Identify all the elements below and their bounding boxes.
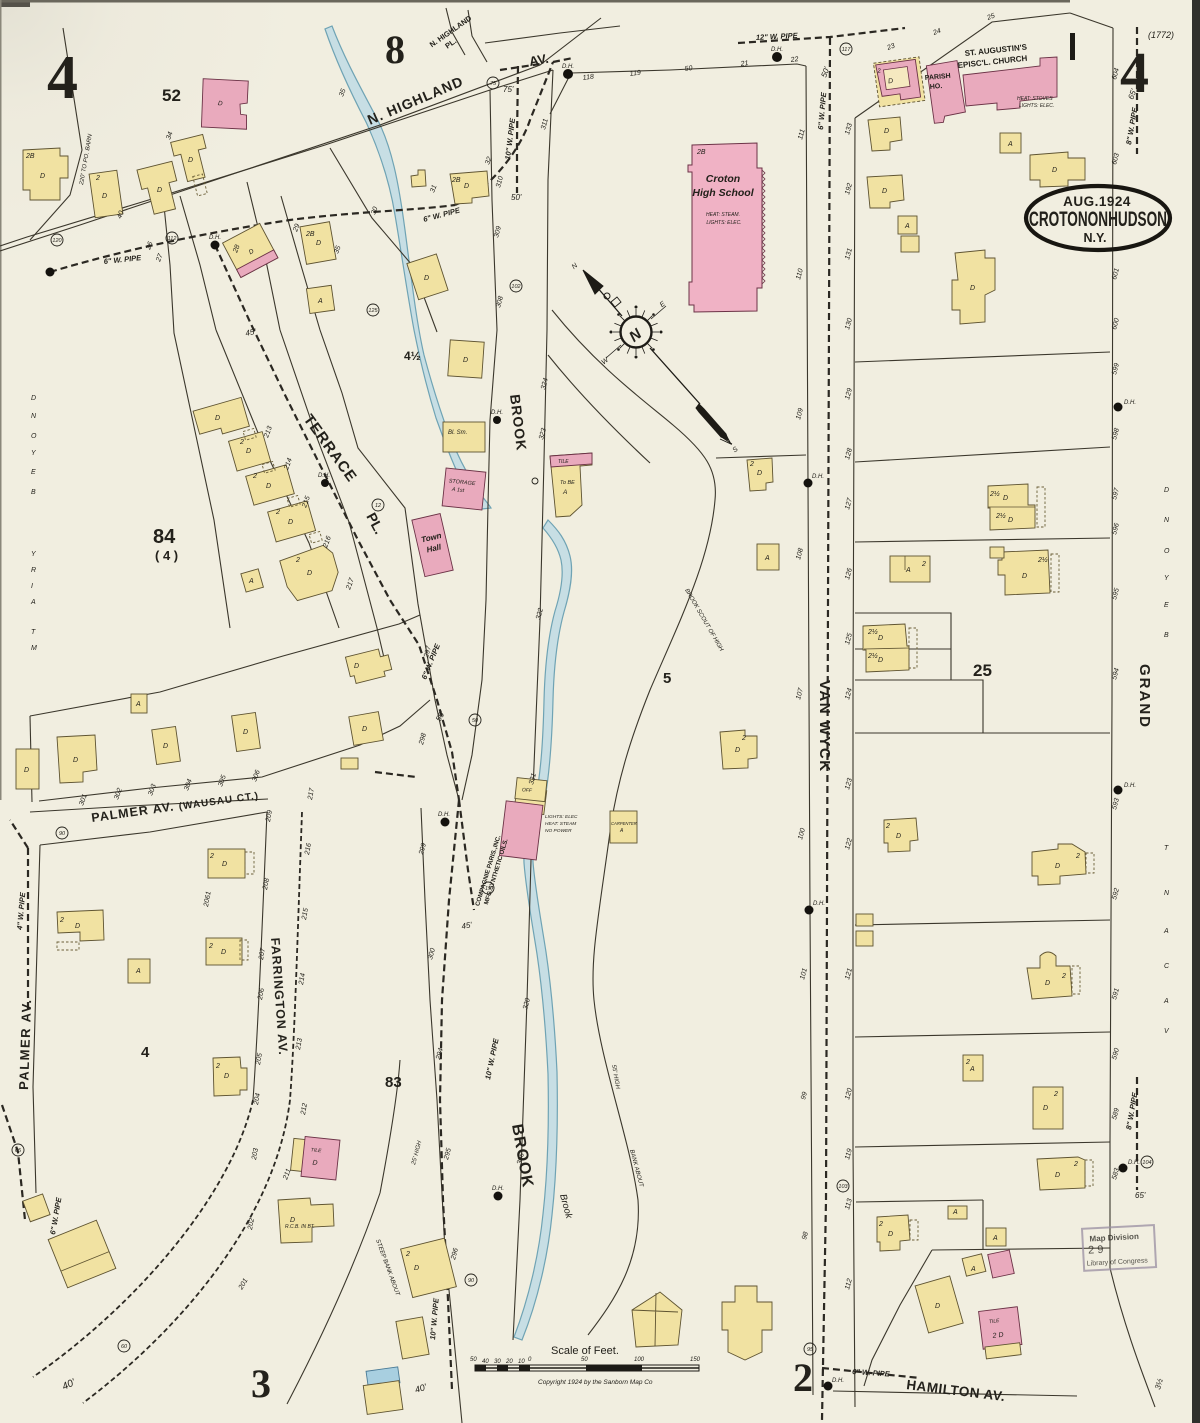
svg-text:D: D (896, 833, 901, 840)
svg-text:D: D (1055, 1172, 1060, 1179)
svg-text:M: M (31, 645, 37, 652)
svg-text:D: D (464, 183, 469, 190)
svg-text:D: D (463, 357, 468, 364)
svg-text:TILE: TILE (310, 1147, 322, 1154)
svg-text:D: D (40, 173, 45, 180)
svg-text:D: D (243, 729, 248, 736)
svg-text:90: 90 (468, 1278, 475, 1284)
svg-text:D: D (888, 1231, 893, 1238)
svg-text:D.H.: D.H. (812, 474, 824, 480)
svg-text:A: A (619, 828, 624, 834)
svg-text:LIGHTS: ELEC: LIGHTS: ELEC (545, 814, 578, 820)
svg-text:R: R (31, 567, 36, 574)
svg-text:22: 22 (789, 56, 799, 64)
svg-text:NO POWER: NO POWER (545, 828, 572, 834)
svg-text:(1772): (1772) (1148, 30, 1174, 40)
svg-text:2½: 2½ (1037, 556, 1048, 564)
svg-text:2: 2 (965, 1059, 970, 1066)
svg-text:4: 4 (141, 1044, 150, 1061)
svg-text:D.H.: D.H. (438, 812, 450, 818)
svg-text:D: D (878, 635, 883, 642)
svg-text:R.C.B. IN BT.: R.C.B. IN BT. (285, 1224, 315, 1230)
svg-text:D: D (1045, 980, 1050, 987)
svg-text:D: D (735, 747, 740, 754)
svg-text:D.H.: D.H. (209, 235, 221, 241)
svg-text:2: 2 (1075, 853, 1080, 860)
svg-text:2: 2 (209, 853, 214, 860)
svg-text:3: 3 (251, 1361, 271, 1406)
svg-text:D.H.: D.H. (562, 64, 574, 70)
svg-text:A: A (562, 489, 567, 496)
svg-text:D: D (882, 188, 887, 195)
svg-text:8: 8 (385, 27, 405, 72)
svg-text:A: A (1163, 998, 1169, 1005)
svg-text:D: D (1052, 167, 1057, 174)
svg-text:D: D (246, 448, 251, 455)
svg-text:D: D (1043, 1105, 1048, 1112)
svg-text:2½: 2½ (995, 512, 1006, 520)
svg-text:2: 2 (1061, 973, 1066, 980)
svg-text:40: 40 (482, 1359, 489, 1365)
svg-text:A: A (952, 1209, 958, 1216)
svg-text:HEAT: STEAM: HEAT: STEAM (545, 821, 576, 827)
svg-text:103: 103 (838, 1184, 848, 1190)
svg-text:OFF: OFF (522, 787, 534, 794)
svg-text:75': 75' (503, 85, 514, 94)
svg-text:150: 150 (690, 1357, 701, 1363)
svg-text:A: A (248, 578, 254, 585)
svg-text:D: D (1055, 863, 1060, 870)
svg-text:HEAT: STOVES: HEAT: STOVES (1017, 96, 1053, 102)
svg-text:D: D (75, 923, 80, 930)
svg-text:D: D (288, 519, 293, 526)
svg-text:50: 50 (470, 1357, 477, 1363)
svg-text:HEAT: STEAM.: HEAT: STEAM. (706, 212, 740, 218)
svg-text:12: 12 (375, 503, 381, 509)
svg-text:T: T (31, 629, 36, 636)
svg-text:D: D (884, 128, 889, 135)
svg-text:A: A (905, 567, 911, 574)
svg-text:2 9: 2 9 (1088, 1244, 1104, 1257)
svg-text:4½: 4½ (404, 349, 421, 363)
svg-text:2: 2 (295, 557, 300, 564)
svg-text:2B: 2B (696, 149, 706, 156)
svg-text:2: 2 (749, 461, 754, 468)
svg-text:52: 52 (162, 86, 181, 105)
svg-text:D: D (1003, 495, 1008, 502)
svg-text:D.H.: D.H. (1124, 783, 1136, 789)
svg-text:E: E (31, 469, 36, 476)
svg-text:Scale of Feet.: Scale of Feet. (551, 1345, 619, 1357)
svg-text:2: 2 (793, 1355, 813, 1400)
svg-text:2: 2 (741, 735, 746, 742)
svg-text:2B: 2B (305, 231, 315, 238)
svg-text:2: 2 (878, 1221, 883, 1228)
svg-text:D: D (157, 187, 162, 194)
svg-text:D: D (266, 483, 271, 490)
svg-text:2B: 2B (25, 153, 35, 160)
svg-text:65: 65 (15, 1148, 22, 1154)
svg-text:2 D: 2 D (991, 1332, 1004, 1340)
svg-text:GRAND: GRAND (1136, 664, 1153, 729)
svg-text:N.Y.: N.Y. (1084, 231, 1107, 245)
svg-text:D.H.: D.H. (771, 47, 783, 53)
svg-text:D: D (312, 1159, 318, 1166)
svg-text:A: A (135, 701, 141, 708)
svg-text:I: I (31, 583, 33, 590)
svg-text:A: A (30, 599, 36, 606)
svg-text:117: 117 (842, 47, 852, 53)
svg-text:D.H.: D.H. (832, 1378, 844, 1384)
svg-text:D: D (1008, 517, 1013, 524)
svg-text:D: D (935, 1303, 940, 1310)
svg-text:D.H.: D.H. (491, 410, 503, 416)
svg-text:D.H.: D.H. (813, 901, 825, 907)
svg-text:2: 2 (252, 473, 257, 480)
svg-text:2: 2 (885, 823, 890, 830)
svg-text:D: D (888, 78, 894, 86)
svg-text:A: A (764, 555, 770, 562)
svg-text:50': 50' (511, 193, 522, 202)
svg-text:A: A (969, 1066, 975, 1073)
svg-text:Croton: Croton (706, 173, 740, 185)
svg-text:102: 102 (511, 284, 520, 290)
svg-text:TILE: TILE (558, 459, 569, 465)
svg-text:50: 50 (472, 718, 479, 724)
svg-text:D: D (354, 663, 359, 670)
svg-text:PALMER AV.: PALMER AV. (16, 998, 34, 1090)
svg-text:D: D (970, 285, 975, 292)
svg-text:2: 2 (59, 917, 64, 924)
svg-text:10: 10 (518, 1359, 525, 1365)
svg-text:90: 90 (59, 831, 66, 837)
svg-text:2: 2 (215, 1063, 220, 1070)
svg-text:D: D (73, 757, 78, 764)
svg-text:( 4 ): ( 4 ) (155, 548, 178, 563)
svg-text:D: D (24, 767, 29, 774)
svg-text:D.H.: D.H. (1128, 1160, 1140, 1166)
svg-text:Copyright 1924 by the Sanborn: Copyright 1924 by the Sanborn Map Co (538, 1379, 653, 1386)
svg-text:21: 21 (739, 60, 749, 68)
svg-text:D: D (316, 240, 321, 247)
svg-text:83: 83 (385, 1074, 402, 1091)
svg-text:O: O (1164, 548, 1170, 555)
svg-text:D.H.: D.H. (318, 473, 330, 479)
svg-text:D: D (188, 157, 193, 164)
svg-text:VAN WYCK: VAN WYCK (816, 680, 833, 773)
svg-text:84: 84 (153, 526, 176, 548)
svg-text:CARPENTER: CARPENTER (611, 821, 637, 826)
svg-text:D: D (102, 193, 107, 200)
svg-text:2½: 2½ (867, 652, 878, 660)
svg-text:95: 95 (807, 1347, 814, 1353)
svg-text:2: 2 (95, 175, 100, 182)
svg-text:D: D (163, 743, 168, 750)
svg-text:A: A (970, 1266, 976, 1273)
svg-text:O: O (31, 433, 37, 440)
svg-text:D: D (215, 415, 220, 422)
svg-text:To BE: To BE (560, 480, 575, 486)
svg-text:50: 50 (581, 1357, 588, 1363)
svg-text:50: 50 (684, 65, 693, 73)
svg-text:D.H.: D.H. (1124, 400, 1136, 406)
svg-text:LIGHTS: ELEC.: LIGHTS: ELEC. (706, 220, 741, 226)
svg-text:D: D (221, 949, 226, 956)
svg-text:120: 120 (52, 238, 62, 244)
svg-text:2: 2 (405, 1251, 410, 1258)
svg-text:2½: 2½ (989, 490, 1000, 498)
svg-text:25: 25 (973, 661, 992, 680)
svg-text:112: 112 (168, 236, 177, 242)
svg-text:D: D (31, 395, 36, 402)
svg-text:D: D (1164, 487, 1169, 494)
svg-text:2: 2 (1073, 1161, 1078, 1168)
svg-text:E: E (1164, 602, 1169, 609)
svg-text:LIGHTS: ELEC.: LIGHTS: ELEC. (1019, 103, 1054, 109)
svg-text:A: A (135, 968, 141, 975)
svg-text:D: D (290, 1217, 295, 1224)
svg-text:D: D (307, 570, 312, 577)
svg-text:D: D (424, 275, 429, 282)
svg-text:B: B (1164, 632, 1169, 639)
svg-text:2½: 2½ (867, 628, 878, 636)
svg-text:2: 2 (921, 561, 926, 568)
svg-text:A: A (904, 223, 910, 230)
svg-text:D: D (414, 1265, 419, 1272)
svg-text:2: 2 (239, 439, 244, 446)
svg-text:A: A (1163, 928, 1169, 935)
svg-text:125: 125 (368, 308, 378, 314)
svg-text:4: 4 (47, 44, 78, 112)
svg-text:A: A (992, 1235, 998, 1242)
svg-text:60: 60 (121, 1344, 128, 1350)
svg-text:A: A (1007, 141, 1013, 148)
svg-text:2: 2 (275, 509, 280, 516)
svg-text:Bl. Sm.: Bl. Sm. (448, 430, 467, 436)
svg-text:100: 100 (634, 1357, 645, 1363)
svg-text:High School: High School (692, 187, 754, 199)
svg-text:65': 65' (1135, 1191, 1146, 1200)
svg-text:2B: 2B (451, 177, 461, 184)
svg-text:HO.: HO. (930, 83, 943, 91)
svg-text:D: D (224, 1073, 229, 1080)
svg-text:5: 5 (663, 670, 671, 687)
svg-text:2: 2 (1053, 1091, 1058, 1098)
svg-text:D.H.: D.H. (492, 1186, 504, 1192)
svg-text:T: T (1164, 845, 1169, 852)
svg-text:20: 20 (505, 1359, 513, 1365)
svg-text:D: D (222, 861, 227, 868)
svg-text:D: D (757, 470, 762, 477)
svg-text:15: 15 (485, 886, 492, 892)
svg-text:D: D (1022, 573, 1027, 580)
svg-text:CROTONONHUDSON: CROTONONHUDSON (1029, 207, 1167, 231)
svg-text:2: 2 (208, 943, 213, 950)
svg-text:B: B (31, 489, 36, 496)
svg-text:75: 75 (490, 81, 497, 87)
svg-text:D: D (878, 657, 883, 664)
svg-text:45': 45' (461, 920, 473, 931)
svg-text:A: A (317, 298, 323, 305)
svg-text:104: 104 (1142, 1160, 1151, 1166)
svg-text:30: 30 (494, 1359, 501, 1365)
svg-text:D: D (362, 726, 367, 733)
